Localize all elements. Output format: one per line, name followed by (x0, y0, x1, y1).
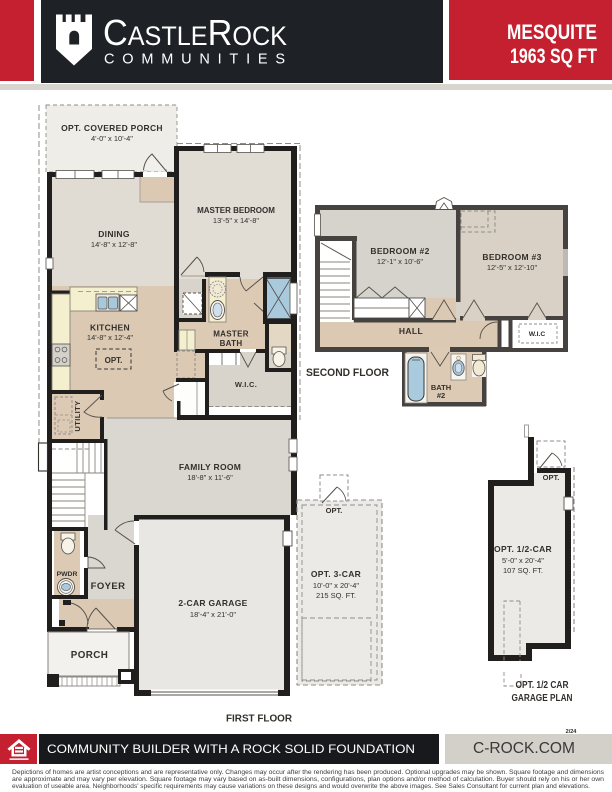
svg-text:1963 SQ FT: 1963 SQ FT (510, 45, 597, 68)
svg-text:18'-8" x 11'-6": 18'-8" x 11'-6" (187, 473, 233, 482)
svg-text:14'-8" x 12'-8": 14'-8" x 12'-8" (91, 240, 137, 249)
svg-text:BEDROOM #3: BEDROOM #3 (482, 252, 541, 262)
svg-text:4'-0" x 10'-4": 4'-0" x 10'-4" (91, 134, 133, 143)
svg-text:MASTER BEDROOM: MASTER BEDROOM (197, 206, 275, 215)
svg-text:107 SQ. FT.: 107 SQ. FT. (503, 566, 543, 575)
svg-text:5'-0" x 20'-4": 5'-0" x 20'-4" (502, 556, 544, 565)
svg-text:evaluation of useable area. Ne: evaluation of useable area. Neighborhood… (12, 784, 590, 790)
svg-text:OPT.: OPT. (105, 356, 123, 365)
svg-text:BEDROOM #2: BEDROOM #2 (370, 246, 429, 256)
svg-text:DINING: DINING (98, 229, 130, 239)
svg-text:OPT.: OPT. (543, 473, 560, 482)
svg-text:SECOND FLOOR: SECOND FLOOR (306, 367, 389, 379)
svg-text:PWDR: PWDR (57, 571, 78, 578)
svg-text:12'-1" x 10'-6": 12'-1" x 10'-6" (377, 257, 423, 266)
svg-text:Depictions of homes are artist: Depictions of homes are artist conceptio… (12, 770, 604, 776)
svg-text:UTILITY: UTILITY (73, 400, 82, 431)
svg-text:are approximate and may vary p: are approximate and may vary per elevati… (12, 777, 604, 783)
svg-text:OPT. COVERED PORCH: OPT. COVERED PORCH (61, 123, 163, 133)
svg-text:OPT. 1/2-CAR: OPT. 1/2-CAR (494, 544, 552, 554)
svg-text:MASTER: MASTER (213, 330, 249, 339)
svg-text:#2: #2 (437, 391, 445, 400)
svg-text:18'-4" x 21'-0": 18'-4" x 21'-0" (190, 610, 236, 619)
svg-text:215 SQ. FT.: 215 SQ. FT. (316, 591, 356, 600)
svg-text:W.I.C: W.I.C (529, 331, 546, 338)
svg-text:13'-5" x 14'-8": 13'-5" x 14'-8" (213, 216, 259, 225)
svg-text:BATH: BATH (220, 339, 243, 348)
svg-text:FIRST FLOOR: FIRST FLOOR (226, 713, 292, 725)
svg-text:FAMILY ROOM: FAMILY ROOM (179, 462, 241, 472)
svg-text:GARAGE PLAN: GARAGE PLAN (512, 693, 573, 704)
svg-text:MESQUITE: MESQUITE (507, 21, 597, 44)
svg-text:12'-5" x 12'-10": 12'-5" x 12'-10" (487, 263, 538, 272)
svg-text:HALL: HALL (399, 326, 423, 336)
svg-text:OPT.: OPT. (326, 506, 343, 515)
svg-text:14'-8" x 12'-4": 14'-8" x 12'-4" (87, 333, 133, 342)
svg-text:COMMUNITY BUILDER WITH A ROCK: COMMUNITY BUILDER WITH A ROCK SOLID FOUN… (47, 742, 415, 756)
svg-text:PORCH: PORCH (71, 650, 108, 661)
svg-text:C-ROCK.COM: C-ROCK.COM (473, 740, 575, 757)
svg-text:FOYER: FOYER (91, 581, 126, 592)
svg-text:OPT. 3-CAR: OPT. 3-CAR (311, 569, 361, 579)
svg-text:10'-0" x 20'-4": 10'-0" x 20'-4" (313, 581, 359, 590)
svg-text:2-CAR GARAGE: 2-CAR GARAGE (178, 598, 247, 608)
svg-text:W.I.C.: W.I.C. (235, 380, 257, 389)
svg-text:KITCHEN: KITCHEN (90, 323, 130, 333)
svg-text:OPT. 1/2 CAR: OPT. 1/2 CAR (516, 680, 570, 691)
